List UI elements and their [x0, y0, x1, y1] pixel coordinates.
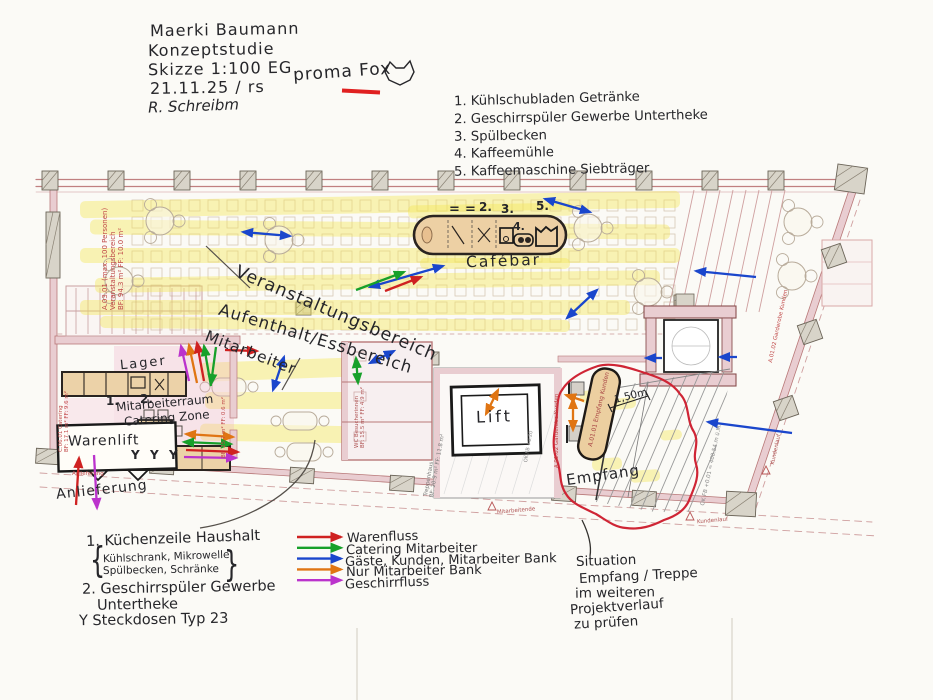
- legend-arrows: [297, 537, 341, 580]
- cad-wc-label: WC Besucherinnen BF: 15.5 m² FF: 4.9 m²: [354, 387, 367, 448]
- chair: [189, 234, 200, 245]
- table-chair: [319, 416, 329, 426]
- cad-event-room-name: Veranstaltungsbereich: [109, 208, 117, 310]
- table-chair: [805, 270, 817, 282]
- marker-counter-1: 1.: [106, 394, 119, 408]
- title-date: 21.11.25 / rs: [150, 77, 265, 98]
- paper-crease-right: [731, 618, 733, 700]
- table-chair: [777, 254, 789, 266]
- equipment-item-3: 3. Spülbecken: [454, 128, 547, 145]
- title-study: Konzeptstudie: [148, 39, 275, 60]
- note-kitchen-sub2: Spülbecken, Schränke: [103, 563, 219, 577]
- table-chair: [248, 382, 258, 392]
- note-dishwasher-line: 2. Geschirrspüler Gewerbe: [82, 578, 276, 597]
- cad-catering-label: C.06.01 Catering BF: 17.1 m² FF: 9.6 m²: [58, 391, 71, 452]
- plan-shape: [414, 216, 566, 254]
- chair: [170, 234, 181, 245]
- ramp-line: [720, 190, 746, 312]
- round-table: [778, 262, 806, 290]
- plan-shape: [518, 237, 524, 243]
- label-warenlift: Warenlift: [68, 432, 140, 449]
- label-lift: Lift: [476, 406, 514, 426]
- cad-staffroom-area: BF: 25.7 m² FF: 0.6 m²: [221, 397, 227, 458]
- marker-bar-5: 5.: [536, 199, 549, 213]
- marker-bar-4: 4.: [513, 220, 525, 233]
- column: [390, 475, 415, 491]
- table-chair: [783, 200, 795, 212]
- cad-event-room-id: A.03.01 (max. 100 Personen): [101, 208, 109, 310]
- ramp-line: [707, 190, 733, 312]
- note-sockets-line: Y Steckdosen Typ 23: [79, 611, 229, 630]
- cad-event-room-area: BF: 94.3 m² FF: 10.0 m²: [117, 208, 125, 310]
- title-client: Maerki Baumann: [150, 19, 300, 41]
- round-table-group: [783, 200, 824, 245]
- highlight-streak: [80, 248, 680, 263]
- table-chair: [633, 302, 645, 314]
- round-table: [574, 214, 602, 242]
- column: [834, 164, 867, 194]
- cad-catering-area: BF: 17.1 m² FF: 9.6 m²: [64, 391, 70, 452]
- cad-wc-area: BF: 15.5 m² FF: 4.9 m²: [360, 387, 366, 448]
- plan-shape: [488, 502, 496, 510]
- ramp-line: [746, 190, 772, 312]
- table-chair: [271, 416, 281, 426]
- column: [46, 212, 60, 278]
- column: [372, 171, 388, 190]
- plan-shape: [230, 430, 237, 458]
- equipment-item-4: 4. Kaffeemühle: [454, 145, 554, 162]
- plan-shape: [525, 237, 531, 243]
- cad-delivery-note: Anlieferung: [72, 471, 104, 477]
- round-table: [146, 207, 174, 235]
- column: [438, 171, 454, 190]
- stair-tread: [640, 372, 700, 512]
- column: [768, 171, 784, 190]
- title-author: R. Schreibm: [148, 95, 240, 116]
- ramp-line: [733, 190, 759, 312]
- title-scale: Skizze 1:100 EG: [148, 58, 293, 80]
- ramp-line: [759, 190, 785, 312]
- plan-shape: [571, 382, 584, 395]
- column: [36, 448, 61, 464]
- chair: [569, 319, 580, 330]
- column: [240, 171, 256, 190]
- scanned-sketch-page: Maerki Baumann Konzeptstudie Skizze 1:10…: [0, 0, 933, 700]
- column: [290, 467, 315, 483]
- column: [306, 171, 322, 190]
- paper-crease-left: [356, 628, 358, 700]
- plan-shape: [558, 356, 650, 362]
- marker-bar-3: 3.: [501, 202, 514, 216]
- socket-symbol-3: Y: [169, 448, 178, 462]
- plan-shape: [582, 520, 591, 556]
- plan-shape: [422, 227, 432, 243]
- column: [702, 171, 718, 190]
- plan-shape: [342, 342, 348, 460]
- round-table: [634, 278, 662, 306]
- marker-bar-eq1: =: [449, 202, 460, 217]
- ramp-line: [694, 190, 720, 312]
- plan-shape: [434, 368, 560, 374]
- oval-table: [283, 412, 317, 430]
- table-chair: [783, 232, 795, 244]
- chair: [607, 319, 618, 330]
- plan-shape: [62, 372, 186, 396]
- column: [632, 490, 657, 506]
- plan-shape: [676, 294, 694, 307]
- oval-table: [287, 443, 321, 461]
- marker-bar-eq2: =: [465, 202, 476, 217]
- marker-counter-2: 2.: [140, 392, 153, 406]
- round-table: [265, 226, 293, 254]
- chair: [208, 234, 219, 245]
- stairwell-core: [434, 368, 562, 498]
- plan-shape: [646, 318, 656, 372]
- socket-symbol-1: Y: [131, 448, 140, 462]
- chair: [664, 268, 675, 279]
- table-chair: [323, 447, 333, 457]
- column: [108, 171, 124, 190]
- column: [725, 491, 756, 517]
- table-chair: [811, 216, 823, 228]
- note-situation-5: zu prüfen: [574, 613, 639, 632]
- chair: [132, 234, 143, 245]
- cafebar-counter: [414, 216, 566, 254]
- round-table: [784, 208, 812, 236]
- cad-garderobe-left: A.01.02 Garderobe Kunden: [554, 394, 560, 468]
- cad-event-room-label: A.03.01 (max. 100 Personen) Veranstaltun…: [101, 208, 125, 310]
- chair: [569, 285, 580, 296]
- plan-shape: [644, 306, 736, 318]
- note-situation-1: Situation: [576, 552, 637, 570]
- magenta-flow-arrow: [184, 457, 236, 458]
- right-elevator: [640, 294, 736, 386]
- chair: [588, 319, 599, 330]
- socket-symbol-2: Y: [150, 448, 159, 462]
- red-underline: [342, 91, 380, 93]
- table-chair: [275, 447, 285, 457]
- column: [42, 171, 58, 190]
- chair: [607, 285, 618, 296]
- chair: [550, 285, 561, 296]
- plan-shape: [686, 512, 694, 520]
- chair: [626, 319, 637, 330]
- column: [174, 171, 190, 190]
- label-cafebar: Cafébar: [466, 251, 542, 272]
- plan-shape: [722, 318, 732, 372]
- legend-label-geschirr: Geschirrfluss: [345, 575, 430, 593]
- blue-flow-arrow: [696, 271, 756, 277]
- marker-bar-2: 2.: [479, 200, 492, 214]
